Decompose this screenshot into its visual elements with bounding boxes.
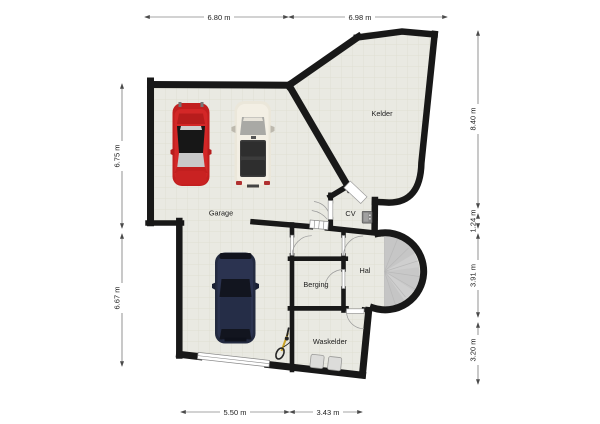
svg-text:CV: CV xyxy=(345,209,355,218)
svg-text:Berging: Berging xyxy=(303,280,328,289)
svg-text:3.43 m: 3.43 m xyxy=(317,408,340,417)
svg-text:3.20 m: 3.20 m xyxy=(469,339,478,362)
svg-text:Waskelder: Waskelder xyxy=(313,337,348,346)
svg-text:Garage: Garage xyxy=(209,209,233,218)
svg-text:3.91 m: 3.91 m xyxy=(469,264,478,287)
svg-text:6.75 m: 6.75 m xyxy=(113,145,122,168)
svg-text:5.50 m: 5.50 m xyxy=(224,408,247,417)
svg-text:Kelder: Kelder xyxy=(371,109,393,118)
svg-text:6.98 m: 6.98 m xyxy=(349,13,372,22)
svg-text:6.80 m: 6.80 m xyxy=(208,13,231,22)
svg-text:6.67 m: 6.67 m xyxy=(113,287,122,310)
svg-text:8.40 m: 8.40 m xyxy=(469,108,478,131)
svg-text:1.24 m: 1.24 m xyxy=(469,210,478,233)
svg-text:Hal: Hal xyxy=(360,266,371,275)
